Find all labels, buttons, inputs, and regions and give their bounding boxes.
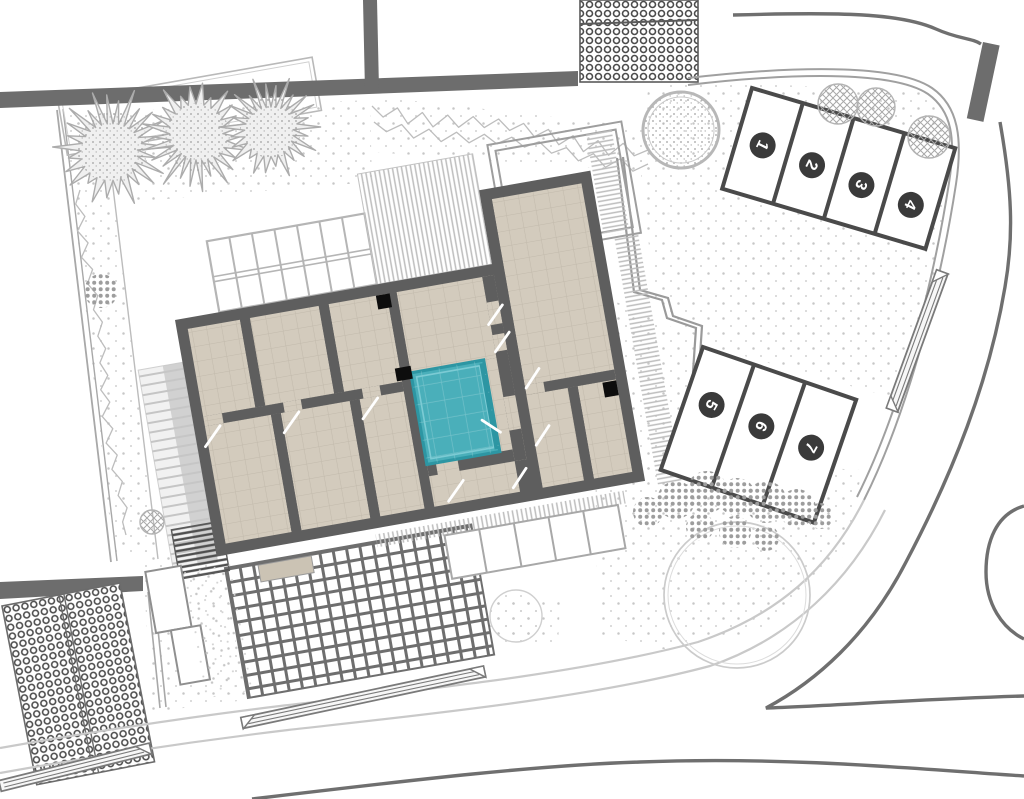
pool bbox=[411, 360, 500, 464]
boundary-wall-top-stub bbox=[363, 0, 379, 91]
road-edge-top bbox=[733, 14, 981, 44]
door-marker-right-wall bbox=[602, 380, 618, 397]
site-plan-page: 1234567 bbox=[0, 0, 1024, 799]
shrub-left-strip bbox=[84, 274, 118, 308]
conifer-foliage bbox=[162, 103, 230, 171]
road-edge-bottom bbox=[252, 761, 1024, 799]
road-turn-right-edge bbox=[986, 506, 1024, 639]
planting-hatch-top bbox=[580, 0, 698, 82]
conifer-foliage bbox=[77, 111, 149, 183]
conifer-foliage bbox=[240, 96, 302, 158]
door-marker-top-wall bbox=[376, 293, 392, 309]
site-plan-drawing: 1234567 bbox=[0, 0, 1024, 799]
louver-canopy-top bbox=[357, 154, 492, 285]
boundary-wall-right-bar bbox=[967, 42, 1000, 122]
round-speckled-tree bbox=[643, 92, 719, 168]
door-marker-pool-corner bbox=[395, 366, 413, 382]
